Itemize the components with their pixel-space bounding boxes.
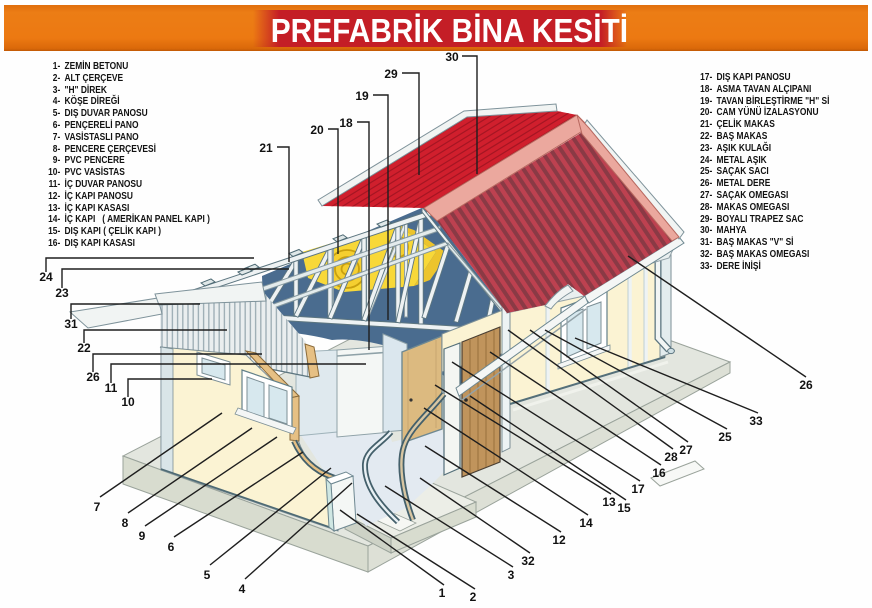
svg-text:24: 24 [39, 270, 53, 284]
svg-text:18: 18 [339, 116, 353, 130]
svg-text:11: 11 [105, 381, 118, 395]
svg-text:21: 21 [259, 141, 273, 155]
svg-text:25: 25 [718, 430, 732, 444]
svg-text:20: 20 [310, 123, 324, 137]
svg-text:29: 29 [384, 67, 398, 81]
svg-text:4: 4 [239, 582, 246, 596]
svg-text:5: 5 [204, 568, 211, 582]
svg-text:13: 13 [602, 495, 616, 509]
svg-text:2: 2 [470, 590, 477, 604]
svg-text:26: 26 [86, 370, 100, 384]
svg-text:12: 12 [552, 533, 566, 547]
svg-text:28: 28 [664, 450, 678, 464]
svg-text:17: 17 [631, 482, 645, 496]
svg-text:3: 3 [508, 568, 515, 582]
svg-text:14: 14 [579, 516, 593, 530]
svg-text:19: 19 [355, 89, 369, 103]
svg-text:22: 22 [77, 341, 91, 355]
svg-text:27: 27 [679, 443, 693, 457]
svg-text:31: 31 [64, 317, 78, 331]
svg-text:9: 9 [139, 529, 146, 543]
svg-text:6: 6 [168, 540, 175, 554]
svg-text:23: 23 [55, 286, 69, 300]
svg-text:10: 10 [121, 395, 135, 409]
svg-text:7: 7 [94, 500, 101, 514]
svg-text:1: 1 [439, 586, 446, 600]
svg-text:32: 32 [521, 554, 535, 568]
svg-text:26: 26 [799, 378, 813, 392]
svg-text:15: 15 [617, 501, 631, 515]
svg-text:33: 33 [749, 414, 763, 428]
svg-text:30: 30 [445, 50, 459, 64]
svg-text:16: 16 [652, 466, 666, 480]
svg-text:8: 8 [122, 516, 129, 530]
